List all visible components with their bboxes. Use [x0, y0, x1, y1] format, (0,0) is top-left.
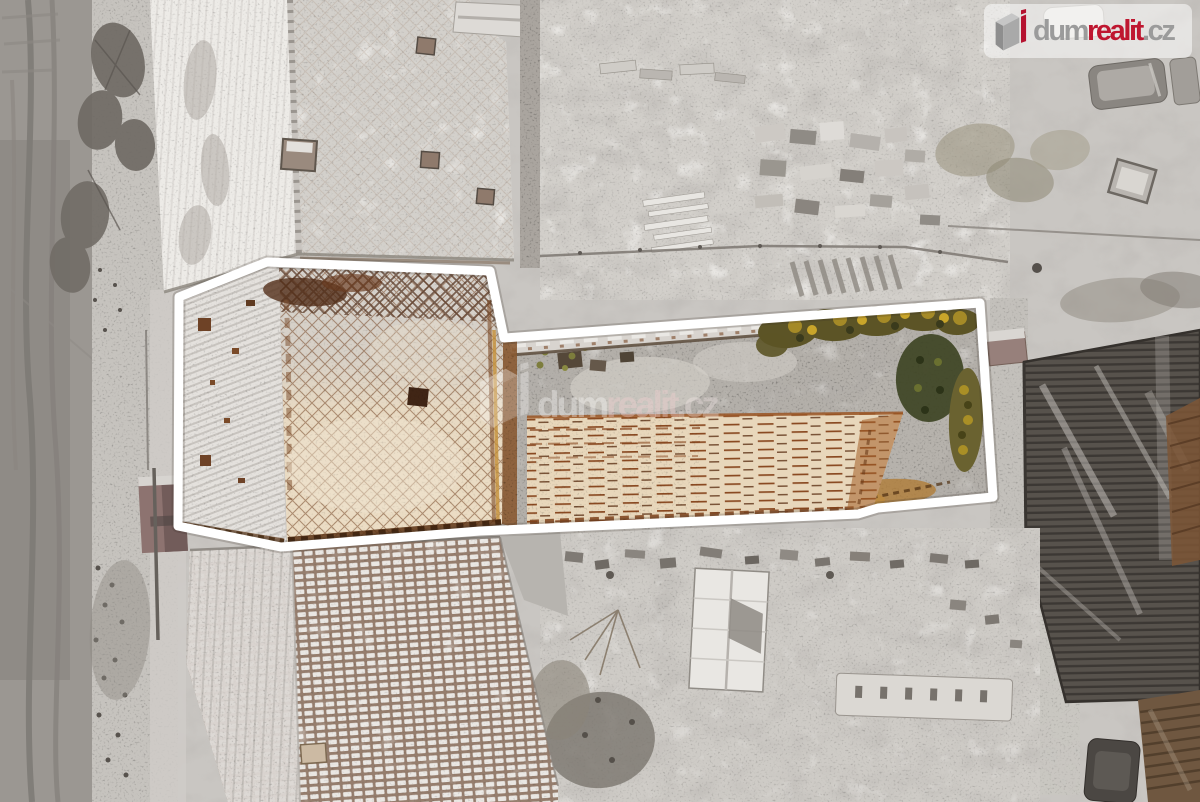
white-shed	[689, 568, 769, 692]
lattice-roof	[262, 262, 503, 543]
logo-realit: realit	[1087, 15, 1142, 47]
aerial-photo	[0, 0, 1200, 802]
logo-dum: dum	[1033, 15, 1087, 47]
ribbed-roof	[180, 262, 286, 543]
logo-text: dumrealit.cz	[1033, 17, 1173, 46]
tarp-bench	[835, 673, 1012, 721]
dark-slat-building	[1024, 330, 1200, 702]
logo-cz: .cz	[1142, 15, 1174, 47]
red-shed	[986, 328, 1027, 366]
aerial-photo-stage: dumrealit.cz dumrealit.cz	[0, 0, 1200, 802]
dumrealit-logo: dumrealit.cz	[984, 4, 1192, 58]
dark-car	[1083, 738, 1140, 802]
rust-corner-roof	[1138, 690, 1200, 802]
rust-band	[502, 339, 517, 528]
dumrealit-logo-icon	[993, 9, 1027, 53]
big-roof-top-left	[150, 0, 514, 292]
